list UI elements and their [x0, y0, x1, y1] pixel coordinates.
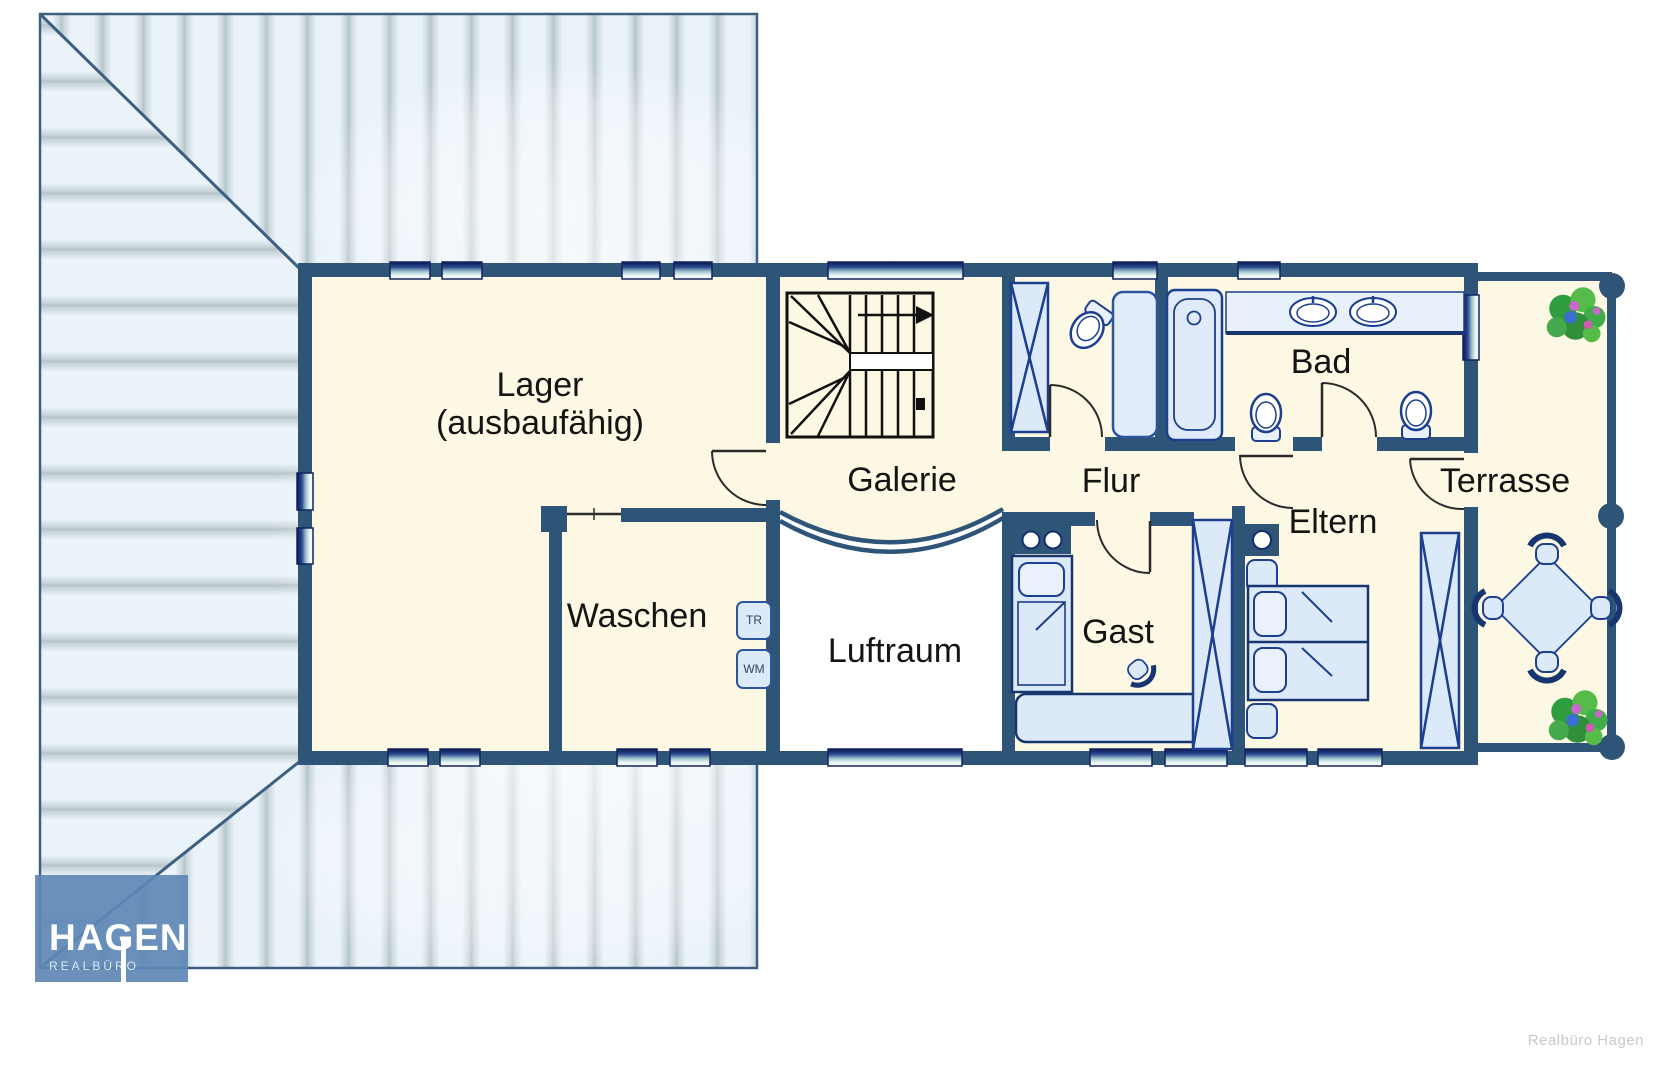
wall-gast-top [1150, 512, 1194, 526]
window [297, 473, 313, 510]
dryer-label: TR [746, 613, 762, 627]
house [298, 263, 1615, 765]
room-label-galerie: Galerie [847, 461, 957, 499]
room-label-terrasse: Terrasse [1440, 462, 1570, 500]
washer-label: WM [743, 662, 764, 676]
floor-plan-page: TR WM [0, 0, 1656, 1071]
toilet-icon [1401, 392, 1431, 439]
logo-title: HAGEN [49, 919, 188, 956]
wall-exterior-right [1464, 507, 1478, 751]
wall-exterior-right [1464, 277, 1478, 295]
room-label-gast: Gast [1082, 613, 1154, 651]
logo-subtitle: REALBÜRO [49, 959, 188, 973]
window [1463, 295, 1479, 360]
wall-lager-galerie [766, 277, 780, 443]
railing-top [1478, 272, 1612, 281]
window [1238, 262, 1280, 279]
window [1318, 749, 1382, 766]
toilet-icon [1251, 394, 1281, 441]
wall-flur-top [1293, 437, 1322, 451]
window [390, 262, 430, 279]
washbasin-counter [1226, 292, 1464, 333]
wall-gast-eltern [1232, 506, 1245, 751]
wall-exterior-left [298, 277, 312, 751]
pillow [1254, 592, 1286, 636]
wall-post-waschen [541, 506, 567, 532]
wall-flur-top [1002, 437, 1050, 451]
nightstand [1247, 704, 1277, 738]
room-label-flur: Flur [1082, 462, 1141, 500]
window [1165, 749, 1227, 766]
room-label-luftraum: Luftraum [828, 632, 962, 670]
wall-waschen-left [549, 532, 562, 751]
room-label-lager: Lager [497, 366, 584, 404]
tall-cabinet [1113, 292, 1157, 437]
wall-gast-top [1002, 512, 1095, 526]
window [674, 262, 712, 279]
pillow [1254, 648, 1286, 692]
railing-post [1599, 273, 1625, 299]
window [828, 262, 963, 279]
window [670, 749, 710, 766]
railing-post [1599, 734, 1625, 760]
window [622, 262, 660, 279]
window [828, 749, 962, 766]
logo-g-stem [121, 937, 126, 982]
window [1113, 262, 1157, 279]
window [1245, 749, 1307, 766]
room-label-waschen: Waschen [567, 597, 707, 635]
window [440, 749, 480, 766]
credit-text: Realbüro Hagen [1528, 1032, 1644, 1049]
window [1090, 749, 1152, 766]
wall-waschen-top [621, 508, 780, 522]
floor-plan-drawing: TR WM [0, 0, 1656, 1071]
handrail-end [916, 398, 925, 410]
room-label-bad: Bad [1291, 343, 1352, 381]
room-label-lager-subtitle: (ausbaufähig) [436, 404, 644, 442]
window [388, 749, 428, 766]
pillow [1019, 563, 1064, 596]
room-label-eltern: Eltern [1289, 503, 1378, 541]
window [442, 262, 482, 279]
bathtub [1167, 290, 1222, 440]
window [617, 749, 657, 766]
wall-exterior-right [1464, 360, 1478, 453]
window [297, 528, 313, 564]
lamp-icon [1253, 531, 1271, 549]
hagen-logo: HAGEN REALBÜRO [35, 875, 188, 982]
railing-post [1598, 503, 1624, 529]
